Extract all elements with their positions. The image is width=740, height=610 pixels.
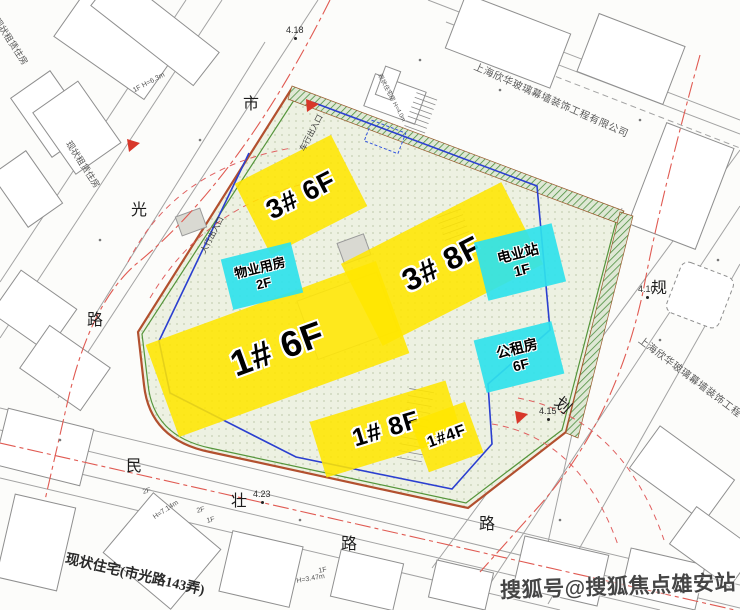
building-label: 1# 6F — [225, 313, 331, 386]
spot-level-dot — [547, 418, 550, 421]
road-left-char-2: 光 — [131, 196, 147, 220]
building-label: 1#4F — [425, 422, 469, 453]
spot-level: 4.18 — [286, 25, 304, 35]
facility-floor: 6F — [511, 355, 531, 375]
building-label: 3# 8F — [396, 229, 487, 299]
spot-level-value: 4.10 — [638, 284, 656, 294]
spot-level-dot — [261, 501, 264, 504]
facility-floor: 2F — [255, 274, 273, 293]
building-label: 3# 6F — [261, 164, 341, 225]
spot-level-value: 4.18 — [286, 25, 304, 35]
spot-level: 4.15 — [539, 406, 557, 416]
spot-level-dot — [294, 37, 297, 40]
building-label: 1# 8F — [349, 405, 423, 453]
road-left-char-3: 路 — [87, 306, 103, 330]
facility-floor: 1F — [512, 260, 532, 280]
road-bottom-char-1: 民 — [126, 452, 142, 476]
road-bottom-char-3: 路 — [341, 530, 357, 554]
road-left-char-1: 市 — [243, 90, 259, 114]
road-right-char-3: 路 — [479, 510, 495, 534]
spot-level: 4.23 — [253, 489, 271, 499]
spot-level-value: 4.23 — [253, 489, 271, 499]
spot-level-dot — [646, 296, 649, 299]
spot-level-value: 4.15 — [539, 406, 557, 416]
spot-level: 4.10 — [638, 284, 656, 294]
road-bottom-char-2: 壮 — [231, 487, 247, 511]
site-plan: 3# 6F 3# 8F 1# 6F 1# 8F 1#4F 物业用房 2F 电业站… — [0, 0, 740, 610]
